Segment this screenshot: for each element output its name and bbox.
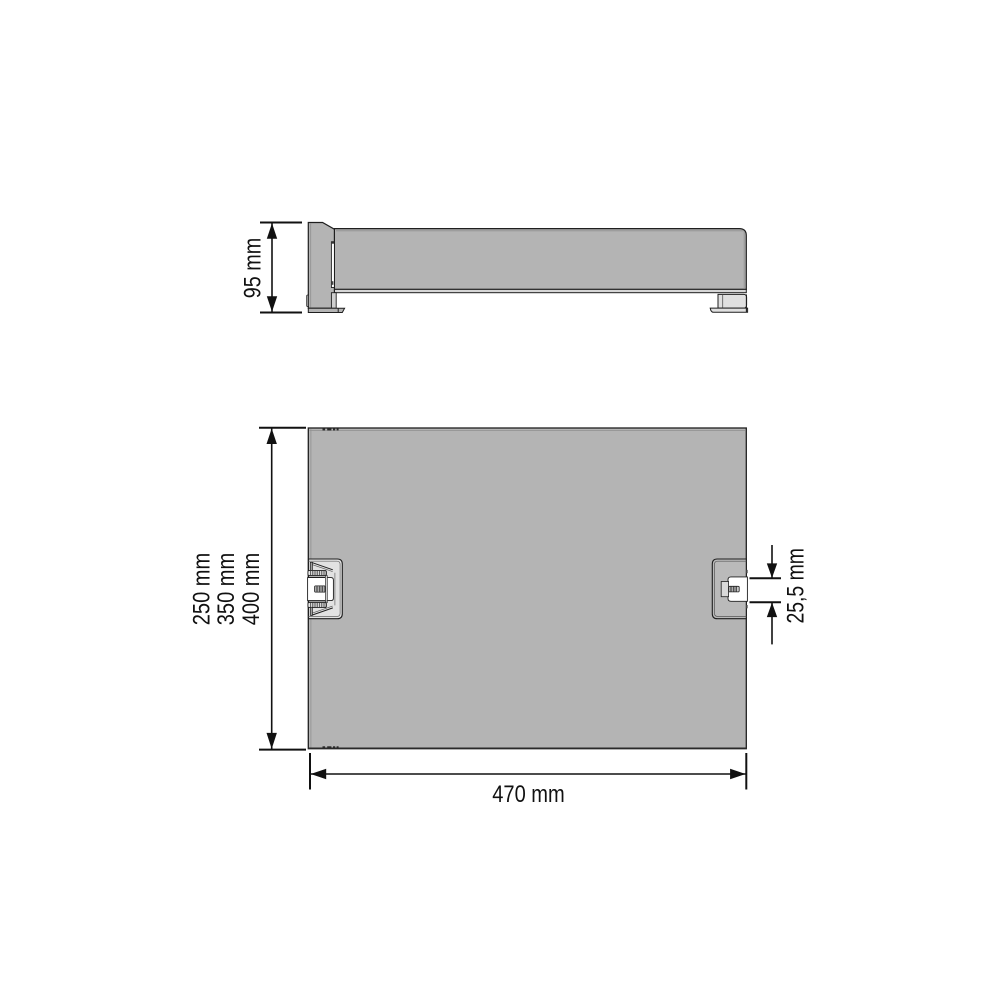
svg-text:400 mm: 400 mm (238, 553, 265, 626)
svg-text:25,5 mm: 25,5 mm (783, 548, 810, 624)
svg-text:95 mm: 95 mm (240, 238, 267, 299)
svg-text:350 mm: 350 mm (213, 553, 240, 626)
svg-text:470 mm: 470 mm (492, 781, 565, 808)
svg-text:250 mm: 250 mm (188, 553, 215, 626)
